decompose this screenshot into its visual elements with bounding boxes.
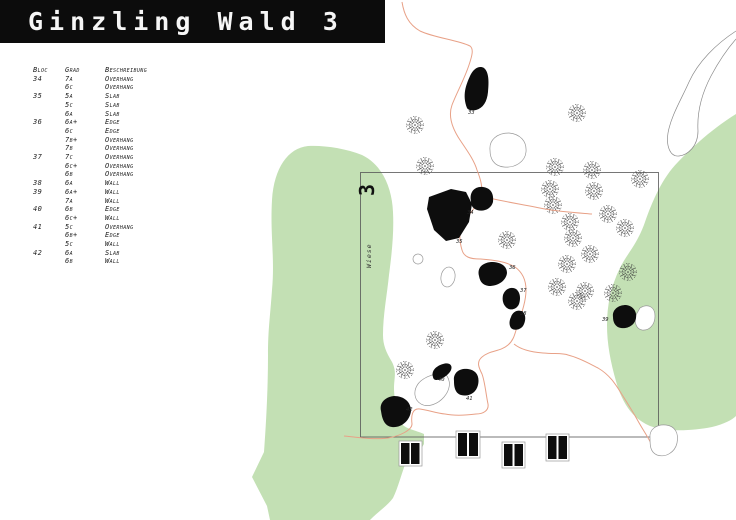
tree-icon — [427, 332, 444, 349]
table-row: 6c+ Overhang — [33, 162, 185, 171]
table-row: 6c Overhang — [33, 83, 185, 92]
table-row: 7b+ Overhang — [33, 136, 185, 145]
cell-grad: 6b — [65, 170, 105, 179]
cell-beschreibung: Slab — [105, 92, 185, 101]
tree-icon — [397, 362, 414, 379]
cell-bloc — [33, 257, 65, 266]
boulder-34 — [471, 187, 494, 211]
boulder-label-36: 36 — [508, 265, 516, 271]
cell-beschreibung: Overhang — [105, 223, 185, 232]
cell-grad: 7a — [65, 197, 105, 206]
cell-grad: 6c — [65, 127, 105, 136]
cell-grad: 7b+ — [65, 136, 105, 145]
cell-beschreibung: Overhang — [105, 75, 185, 84]
sector-number-label: 3 — [355, 184, 379, 196]
table-row: 6c+ Wall — [33, 214, 185, 223]
cell-beschreibung: Edge — [105, 127, 185, 136]
cell-beschreibung: Overhang — [105, 144, 185, 153]
house — [502, 442, 525, 468]
boulder-label-33: 33 — [467, 110, 475, 116]
tree-icon — [586, 183, 603, 200]
column-header-grad: Grad — [65, 66, 105, 75]
cell-bloc: 42 — [33, 249, 65, 258]
cell-bloc — [33, 231, 65, 240]
table-row: 35 5a Slab — [33, 92, 185, 101]
cell-grad: 6c+ — [65, 214, 105, 223]
tree-icon — [549, 279, 566, 296]
cell-bloc: 40 — [33, 205, 65, 214]
cell-beschreibung: Wall — [105, 257, 185, 266]
table-row: 7b Overhang — [33, 144, 185, 153]
title-bar: Ginzling Wald 3 — [0, 0, 385, 43]
tree-icon — [632, 171, 649, 188]
contour-blob — [490, 133, 526, 167]
cell-grad: 6b — [65, 205, 105, 214]
cell-bloc — [33, 136, 65, 145]
house — [546, 434, 569, 461]
table-row: 6c Edge — [33, 127, 185, 136]
cell-bloc — [33, 144, 65, 153]
cell-bloc — [33, 162, 65, 171]
cell-bloc — [33, 240, 65, 249]
boulder-35 — [427, 189, 472, 241]
cell-grad: 5c — [65, 223, 105, 232]
tree-icon — [559, 256, 576, 273]
tree-icon — [407, 117, 424, 134]
boulder-37 — [503, 288, 520, 310]
cell-beschreibung: Wall — [105, 240, 185, 249]
meadow-areas — [252, 114, 736, 520]
cell-grad: 6b+ — [65, 231, 105, 240]
cell-beschreibung: Overhang — [105, 162, 185, 171]
boulder-36 — [479, 262, 507, 286]
cell-beschreibung: Slab — [105, 110, 185, 119]
cell-grad: 6c+ — [65, 162, 105, 171]
cell-grad: 6a — [65, 110, 105, 119]
cell-beschreibung: Slab — [105, 249, 185, 258]
cell-grad: 6a+ — [65, 118, 105, 127]
boulder-label-37: 37 — [519, 288, 527, 294]
tree-icon — [499, 232, 516, 249]
cell-beschreibung: Edge — [105, 231, 185, 240]
cell-bloc — [33, 101, 65, 110]
boulder-table: Bloc Grad Beschreibung 34 7a Overhang 6c… — [33, 66, 185, 266]
houses — [399, 431, 569, 468]
cell-grad: 7a — [65, 75, 105, 84]
cell-bloc — [33, 83, 65, 92]
cell-grad: 5c — [65, 101, 105, 110]
tree-icon — [600, 206, 617, 223]
cell-grad: 6b — [65, 257, 105, 266]
cell-beschreibung: Edge — [105, 118, 185, 127]
cell-beschreibung: Overhang — [105, 136, 185, 145]
cell-beschreibung: Wall — [105, 188, 185, 197]
tree-icon — [582, 246, 599, 263]
contour-blob — [650, 425, 678, 456]
table-row: 5c Wall — [33, 240, 185, 249]
cell-beschreibung: Edge — [105, 205, 185, 214]
cell-bloc — [33, 110, 65, 119]
table-row: 34 7a Overhang — [33, 75, 185, 84]
cell-grad: 7b — [65, 144, 105, 153]
boulder-41 — [454, 369, 479, 396]
topo-page: 33 34 35 36 37 38 39 40 41 42 3 Wiese Gi… — [0, 0, 736, 520]
cell-grad: 5a — [65, 92, 105, 101]
table-row: 6a Slab — [33, 110, 185, 119]
cell-beschreibung: Slab — [105, 101, 185, 110]
house — [399, 441, 422, 466]
tree-icon — [565, 230, 582, 247]
table-row: 40 6b Edge — [33, 205, 185, 214]
cell-grad: 6a — [65, 249, 105, 258]
cell-grad: 6a — [65, 179, 105, 188]
table-row: 6b Overhang — [33, 170, 185, 179]
boulder-label-42: 42 — [406, 407, 413, 413]
tree-icon — [542, 181, 559, 198]
tree-icon — [569, 293, 586, 310]
cell-beschreibung: Overhang — [105, 153, 185, 162]
cell-bloc: 39 — [33, 188, 65, 197]
meadow-left — [252, 146, 424, 520]
cell-beschreibung: Wall — [105, 197, 185, 206]
cell-bloc — [33, 127, 65, 136]
column-header-beschreibung: Beschreibung — [105, 66, 185, 75]
tree-icon — [617, 220, 634, 237]
tree-icon — [417, 158, 434, 175]
tree-icon — [584, 162, 601, 179]
boulder-label-40: 40 — [438, 377, 445, 383]
boulder-label-34: 34 — [466, 210, 474, 216]
cell-bloc: 34 — [33, 75, 65, 84]
table-row: 42 6a Slab — [33, 249, 185, 258]
tree-icon — [562, 214, 579, 231]
cell-bloc: 37 — [33, 153, 65, 162]
table-row: 37 7c Overhang — [33, 153, 185, 162]
table-row: 5c Slab — [33, 101, 185, 110]
page-title: Ginzling Wald 3 — [0, 0, 385, 44]
table-row: 41 5c Overhang — [33, 223, 185, 232]
boulder-label-41: 41 — [466, 396, 473, 402]
tree-icon — [547, 159, 564, 176]
cell-bloc: 35 — [33, 92, 65, 101]
table-row: 6b Wall — [33, 257, 185, 266]
contour-blob — [413, 254, 423, 264]
table-row: 39 6a+ Wall — [33, 188, 185, 197]
boulder-label-39: 39 — [601, 317, 609, 323]
cell-bloc — [33, 170, 65, 179]
boulder-33 — [465, 67, 489, 110]
meadow-right — [607, 114, 736, 430]
cell-bloc — [33, 214, 65, 223]
cell-beschreibung: Overhang — [105, 83, 185, 92]
meadow-label: Wiese — [365, 243, 373, 268]
cell-beschreibung: Wall — [105, 179, 185, 188]
cell-bloc — [33, 197, 65, 206]
contour-blob — [439, 266, 456, 288]
table-header-row: Bloc Grad Beschreibung — [33, 66, 185, 75]
table-row: 38 6a Wall — [33, 179, 185, 188]
table-rows: 34 7a Overhang 6c Overhang 35 5a Slab 5c… — [33, 75, 185, 266]
table-row: 7a Wall — [33, 197, 185, 206]
cell-grad: 6c — [65, 83, 105, 92]
cell-bloc: 36 — [33, 118, 65, 127]
cell-grad: 7c — [65, 153, 105, 162]
boulder-label-38: 38 — [519, 311, 527, 317]
boulder-label-35: 35 — [455, 239, 463, 245]
table-row: 6b+ Edge — [33, 231, 185, 240]
cell-grad: 5c — [65, 240, 105, 249]
cell-bloc: 38 — [33, 179, 65, 188]
cell-grad: 6a+ — [65, 188, 105, 197]
column-header-bloc: Bloc — [33, 66, 65, 75]
trail-branch-upper — [481, 196, 592, 214]
cell-beschreibung: Overhang — [105, 170, 185, 179]
table-row: 36 6a+ Edge — [33, 118, 185, 127]
tree-icon — [569, 105, 586, 122]
cell-bloc: 41 — [33, 223, 65, 232]
house — [456, 431, 480, 458]
cell-beschreibung: Wall — [105, 214, 185, 223]
